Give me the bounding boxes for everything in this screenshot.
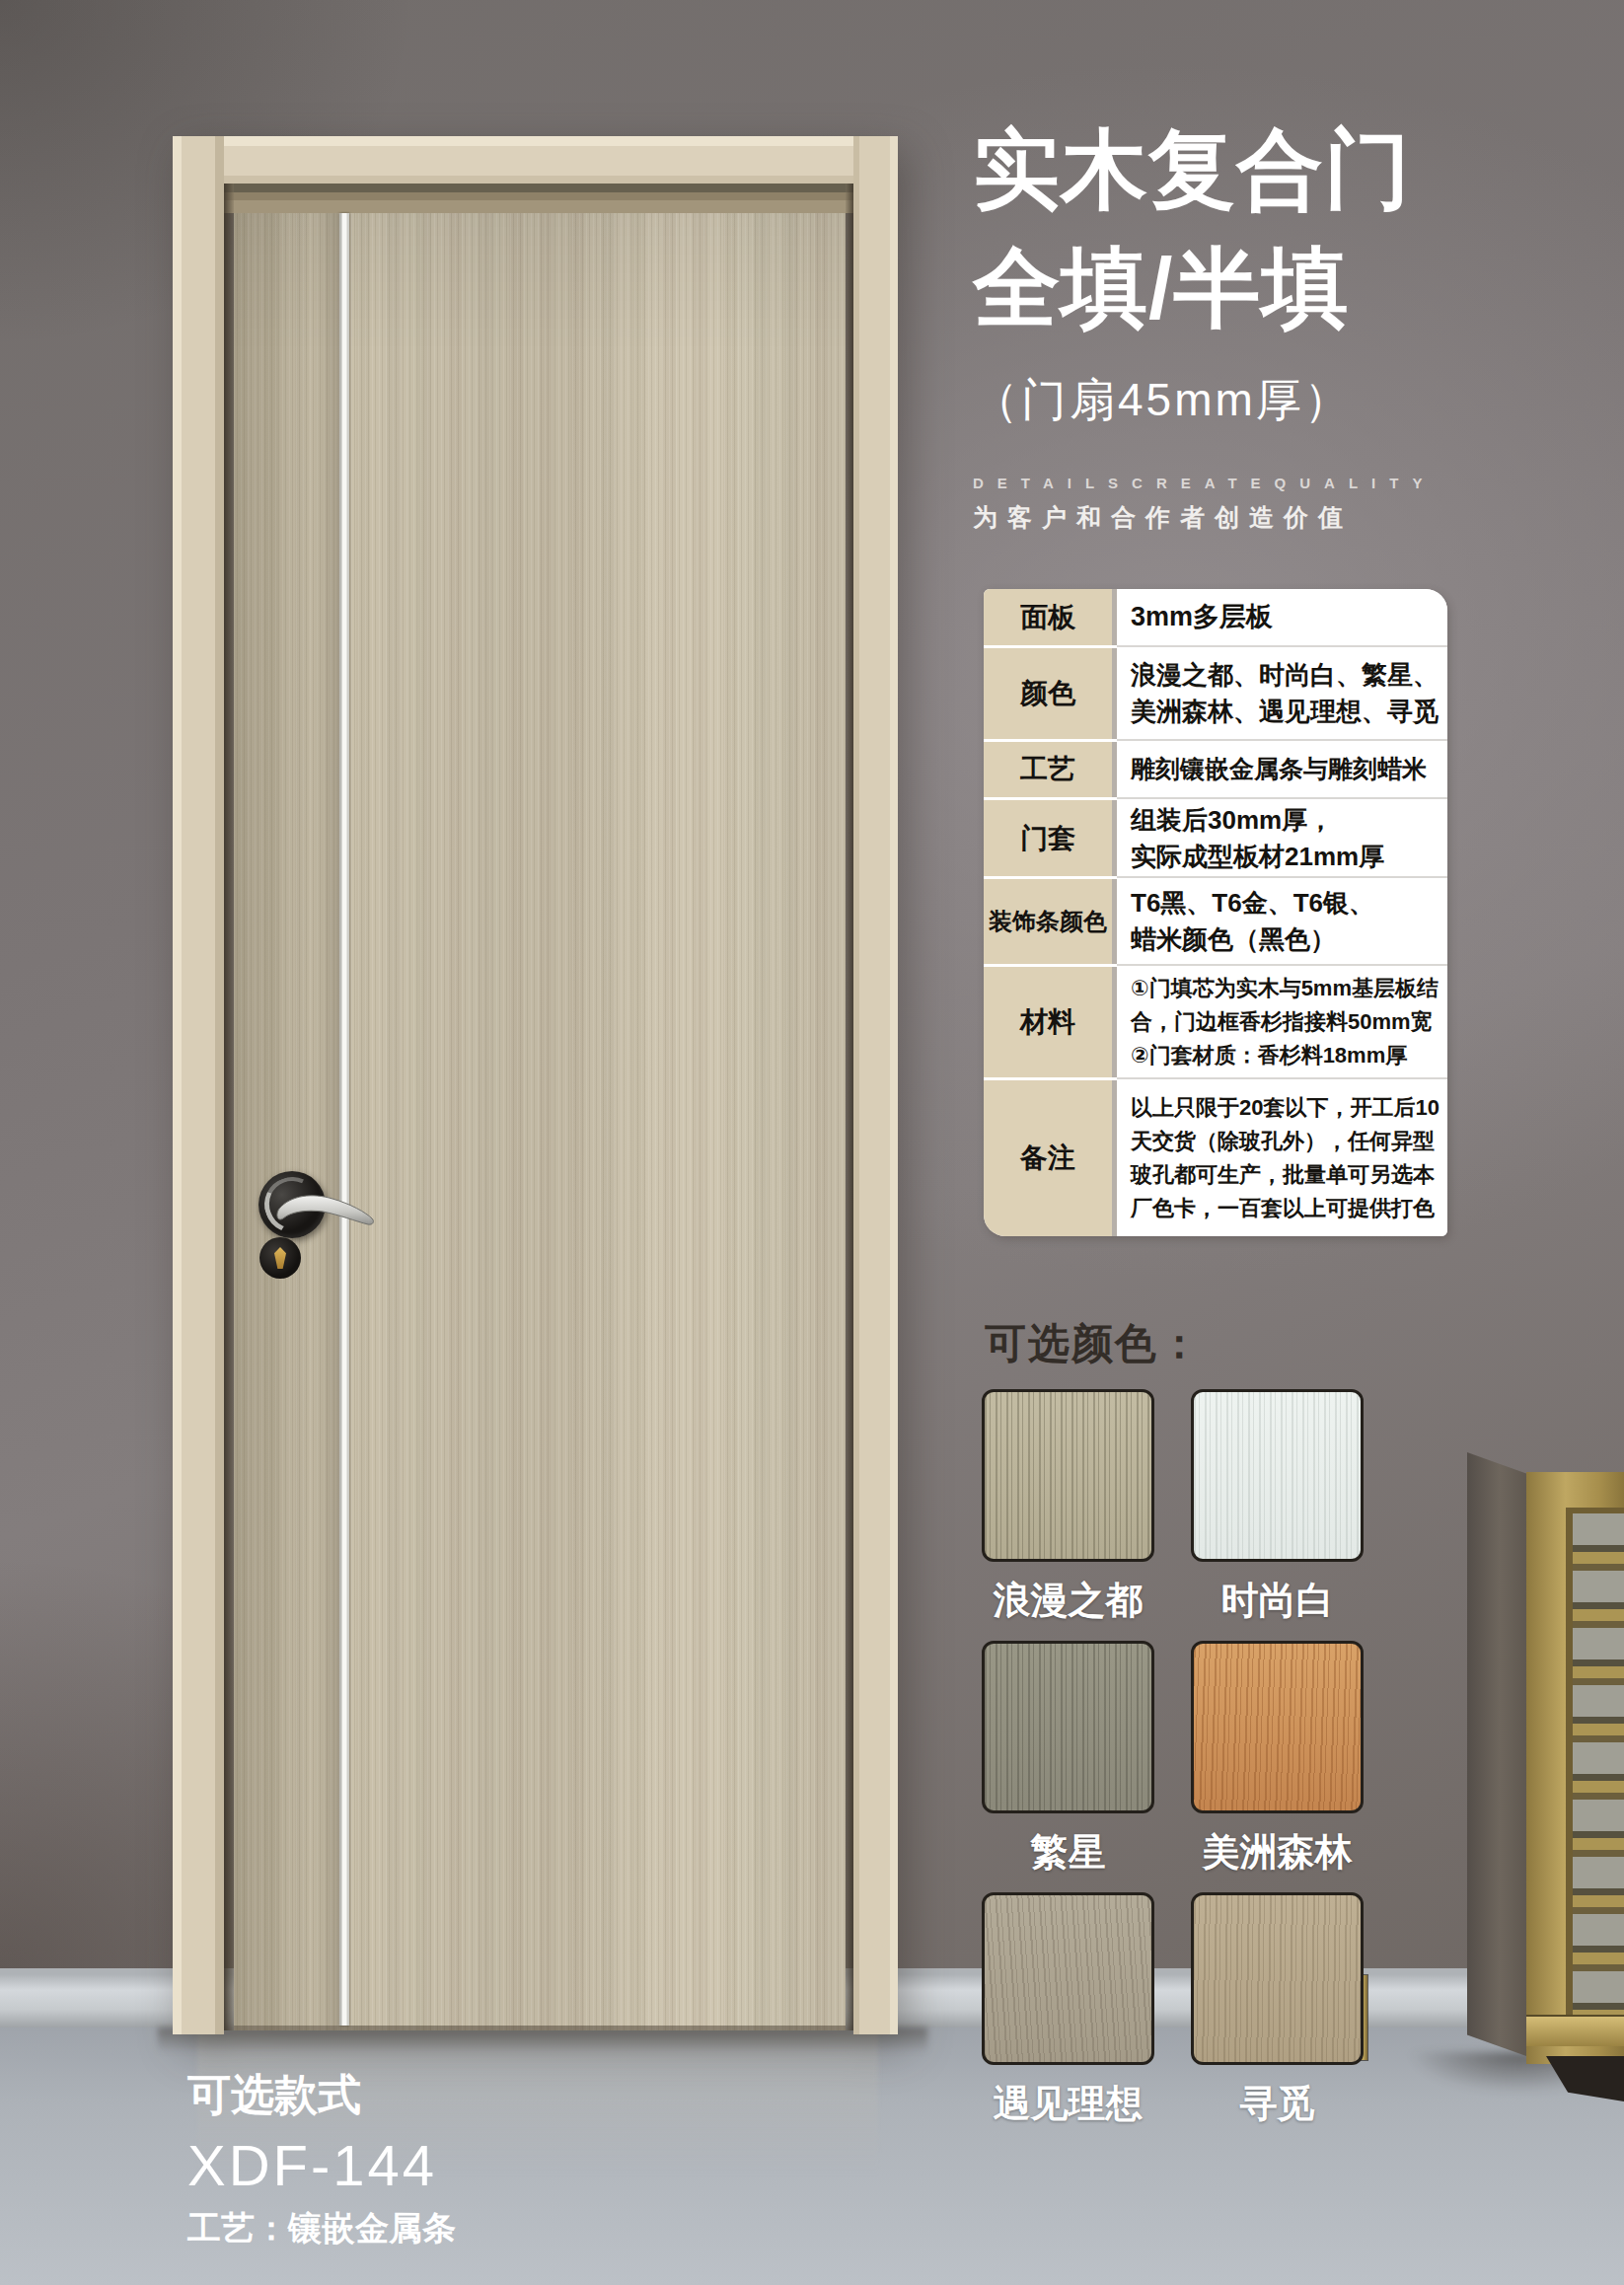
color-swatch — [1191, 1389, 1364, 1562]
cabinet-plinth — [1546, 2056, 1624, 2101]
color-swatch — [982, 1892, 1154, 2065]
spec-label: 颜色 — [984, 648, 1112, 739]
tagline-chinese: 为客户和合作者创造价值 — [973, 501, 1436, 534]
spec-label: 装饰条颜色 — [984, 879, 1112, 964]
style-block: 可选款式 XDF-144 工艺：镶嵌金属条 — [187, 2066, 456, 2251]
swatch-cell: 美洲森林 — [1191, 1641, 1364, 1892]
door-casing-left — [173, 136, 224, 2034]
spec-label: 材料 — [984, 967, 1112, 1077]
spec-label: 备注 — [984, 1080, 1112, 1236]
color-swatch — [982, 1389, 1154, 1562]
swatch-label: 寻觅 — [1191, 2079, 1364, 2129]
color-swatch — [1191, 1892, 1364, 2065]
page-title-line2: 全填/半填 — [973, 229, 1436, 347]
catalog-page: 实木复合门 全填/半填 （门扇45mm厚） DETAILSCREATEQUALI… — [0, 0, 1624, 2285]
spec-row-colors: 颜色 浪漫之都、时尚白、繁星、 美洲森林、遇见理想、寻觅 — [984, 648, 1447, 739]
keyhole-cylinder — [274, 1247, 286, 1269]
color-swatch — [982, 1641, 1154, 1813]
title-block: 实木复合门 全填/半填 （门扇45mm厚） DETAILSCREATEQUALI… — [973, 111, 1436, 534]
spec-value: T6黑、T6金、T6银、 蜡米颜色（黑色） — [1117, 879, 1447, 964]
swatch-cell: 遇见理想 — [982, 1892, 1154, 2144]
spec-table: 面板 3mm多层板 颜色 浪漫之都、时尚白、繁星、 美洲森林、遇见理想、寻觅 工… — [984, 589, 1447, 1236]
spec-row-remarks: 备注 以上只限于20套以下，开工后10 天交货（除玻孔外），任何异型 玻孔都可生… — [984, 1080, 1447, 1236]
craft-note: 工艺：镶嵌金属条 — [187, 2206, 456, 2251]
swatch-label: 遇见理想 — [982, 2079, 1154, 2129]
spec-value: 浪漫之都、时尚白、繁星、 美洲森林、遇见理想、寻觅 — [1117, 648, 1447, 739]
swatch-label: 时尚白 — [1191, 1576, 1364, 1626]
cabinet-front — [1526, 1472, 1624, 2064]
swatch-label: 美洲森林 — [1191, 1827, 1364, 1878]
model-number: XDF-144 — [187, 2132, 456, 2198]
swatch-cell: 浪漫之都 — [982, 1389, 1154, 1641]
door-thickness-subtitle: （门扇45mm厚） — [973, 370, 1436, 431]
page-title-line1: 实木复合门 — [973, 111, 1436, 229]
swatch-label: 繁星 — [982, 1827, 1154, 1878]
spec-row-panel: 面板 3mm多层板 — [984, 589, 1447, 645]
spec-row-material: 材料 ①门填芯为实木与5mm基层板结 合，门边框香杉指接料50mm宽 ②门套材质… — [984, 967, 1447, 1077]
door-casing-top — [173, 136, 898, 184]
spec-row-trim-color: 装饰条颜色 T6黑、T6金、T6银、 蜡米颜色（黑色） — [984, 879, 1447, 964]
tagline-english: DETAILSCREATEQUALITY — [973, 475, 1436, 491]
color-swatch-grid: 浪漫之都 时尚白 繁星 美洲森林 遇见理想 寻觅 — [982, 1389, 1366, 2144]
spec-value: 以上只限于20套以下，开工后10 天交货（除玻孔外），任何异型 玻孔都可生产，批… — [1117, 1080, 1447, 1236]
door-casing-right — [853, 136, 898, 2034]
swatch-cell: 繁星 — [982, 1641, 1154, 1892]
door-leaf — [234, 213, 846, 2030]
spec-row-craft: 工艺 雕刻镶嵌金属条与雕刻蜡米 — [984, 742, 1447, 797]
spec-value: ①门填芯为实木与5mm基层板结 合，门边框香杉指接料50mm宽 ②门套材质：香杉… — [1117, 967, 1447, 1077]
spec-row-frame: 门套 组装后30mm厚， 实际成型板材21mm厚 — [984, 800, 1447, 876]
spec-label: 门套 — [984, 800, 1112, 876]
style-heading: 可选款式 — [187, 2066, 456, 2124]
spec-value: 3mm多层板 — [1117, 589, 1447, 645]
swatch-label: 浪漫之都 — [982, 1576, 1154, 1626]
color-swatch — [1191, 1641, 1364, 1813]
spec-value: 组装后30mm厚， 实际成型板材21mm厚 — [1117, 800, 1447, 876]
door-photo — [173, 136, 898, 2034]
door-jamb-reveal-left — [224, 184, 234, 2030]
door-jamb-reveal-top — [224, 184, 853, 213]
swatch-cell: 时尚白 — [1191, 1389, 1364, 1641]
spec-label: 面板 — [984, 589, 1112, 645]
cabinet-drawers — [1566, 1508, 1624, 2017]
color-options-heading: 可选颜色： — [985, 1316, 1202, 1371]
spec-value: 雕刻镶嵌金属条与雕刻蜡米 — [1117, 742, 1447, 797]
inlaid-metal-strip — [339, 213, 349, 2026]
gold-cabinet — [1358, 1448, 1624, 2119]
cabinet-side-panel — [1467, 1452, 1526, 2056]
spec-label: 工艺 — [984, 742, 1112, 797]
door-keyhole-rosette — [259, 1237, 301, 1279]
door-left-stile — [234, 213, 338, 2026]
door-handle-lever — [269, 1189, 378, 1228]
door-jamb-reveal-right — [846, 184, 853, 2030]
cabinet-base-trim — [1526, 2017, 1624, 2046]
swatch-cell: 寻觅 — [1191, 1892, 1364, 2144]
